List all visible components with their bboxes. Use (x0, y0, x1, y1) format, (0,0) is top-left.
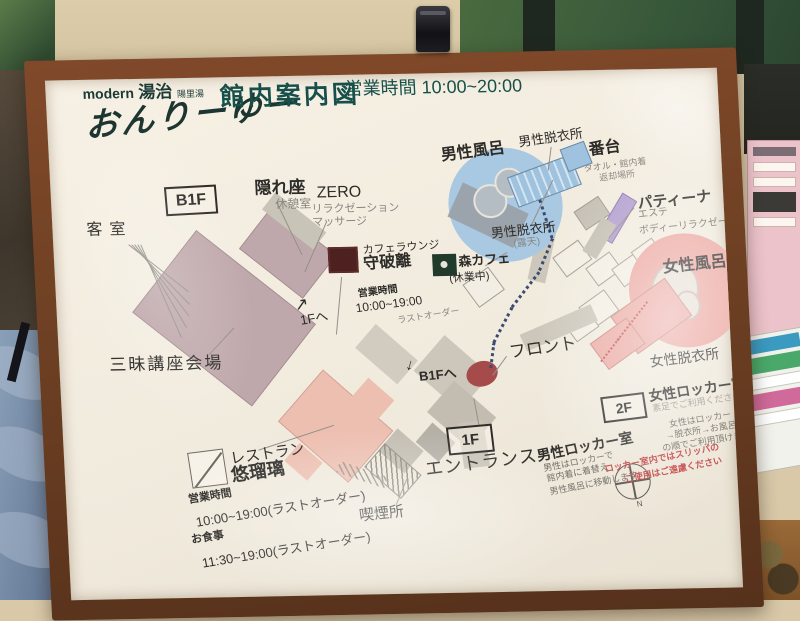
leader-line (336, 277, 342, 335)
map-content: modern 湯治 陽里湯 おんりーゆー 館内案内図 営業時間 10:00~20… (45, 68, 743, 600)
route-dotted (511, 271, 541, 308)
label-zero-sub1: リラクゼーション (311, 202, 399, 216)
label-patina-sub1: エステ (637, 206, 668, 221)
page-title: 館内案内図 (219, 81, 360, 112)
label-restaurant-hours-title: 営業時間 (187, 487, 233, 506)
cafe-shuhari-logo (328, 247, 359, 274)
restaurant-logo (187, 449, 228, 489)
label-zero: ZERO (316, 184, 361, 203)
map-paper: modern 湯治 陽里湯 おんりーゆー 館内案内図 営業時間 10:00~20… (45, 68, 743, 600)
opening-hours-value: 10:00~20:00 (421, 76, 523, 98)
floor-box-b1f: B1F (164, 184, 218, 216)
floor-box-1f-label: 1F (461, 430, 480, 448)
route-dotted (492, 307, 513, 343)
label-restaurant-meal-hours: 11:30~19:00(ラストオーダー) (201, 530, 372, 572)
opening-hours: 営業時間 10:00~20:00 (344, 76, 523, 100)
label-kakureza-sub: 休憩室 (275, 198, 312, 212)
floor-box-2f-label: 2F (615, 399, 634, 417)
label-smoking: 喫煙所 (358, 503, 405, 525)
compass-north-label: N (636, 499, 643, 509)
label-zanmai-hall: 三昧講座会場 (109, 353, 224, 375)
label-front: フロント (508, 333, 578, 362)
picture-frame: modern 湯治 陽里湯 おんりーゆー 館内案内図 営業時間 10:00~20… (24, 47, 764, 620)
wall-poster-pink (747, 140, 800, 337)
label-restaurant-meal-title: お食事 (190, 529, 225, 547)
label-mori-cafe: 森カフェ (458, 251, 511, 270)
label-bandai: 番台 (588, 138, 623, 160)
label-cafe-name: 守破離 (363, 252, 413, 274)
label-guest-rooms: 客室 (86, 221, 133, 240)
label-womens-dressing: 女性脱衣所 (649, 345, 721, 370)
label-to-1f: 1Fへ (299, 309, 330, 328)
window-mullion (736, 0, 764, 74)
floor-box-2f: 2F (600, 392, 648, 423)
binder-clip-icon (416, 6, 450, 52)
opening-hours-label: 営業時間 (344, 78, 417, 99)
label-zero-sub2: マッサージ (312, 216, 367, 230)
floor-box-b1f-label: B1F (175, 191, 207, 211)
label-kakureza: 隠れ座 (254, 178, 306, 199)
brand-modern: modern (82, 85, 134, 102)
